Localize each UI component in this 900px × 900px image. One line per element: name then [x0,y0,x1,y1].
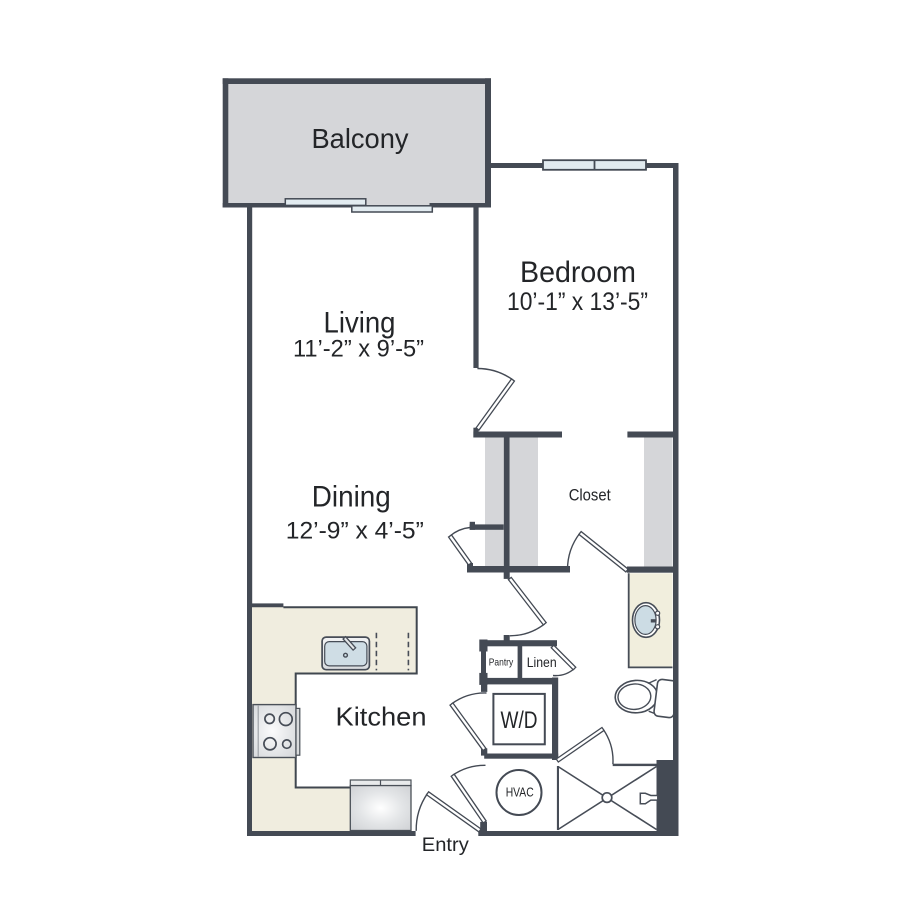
svg-text:Linen: Linen [527,654,557,670]
svg-text:W/D: W/D [501,707,538,734]
svg-text:Bedroom: Bedroom [520,256,636,289]
svg-text:Pantry: Pantry [489,657,514,669]
svg-text:12’-9” x 4’-5”: 12’-9” x 4’-5” [286,518,424,545]
svg-text:10’-1” x 13’-5”: 10’-1” x 13’-5” [507,288,648,316]
svg-text:Entry: Entry [422,834,469,856]
svg-text:HVAC: HVAC [506,786,534,800]
svg-text:Dining: Dining [312,481,391,514]
svg-text:Closet: Closet [569,486,611,505]
svg-text:Balcony: Balcony [312,123,409,154]
svg-text:11’-2” x 9’-5”: 11’-2” x 9’-5” [293,335,424,362]
svg-text:Kitchen: Kitchen [336,702,427,732]
